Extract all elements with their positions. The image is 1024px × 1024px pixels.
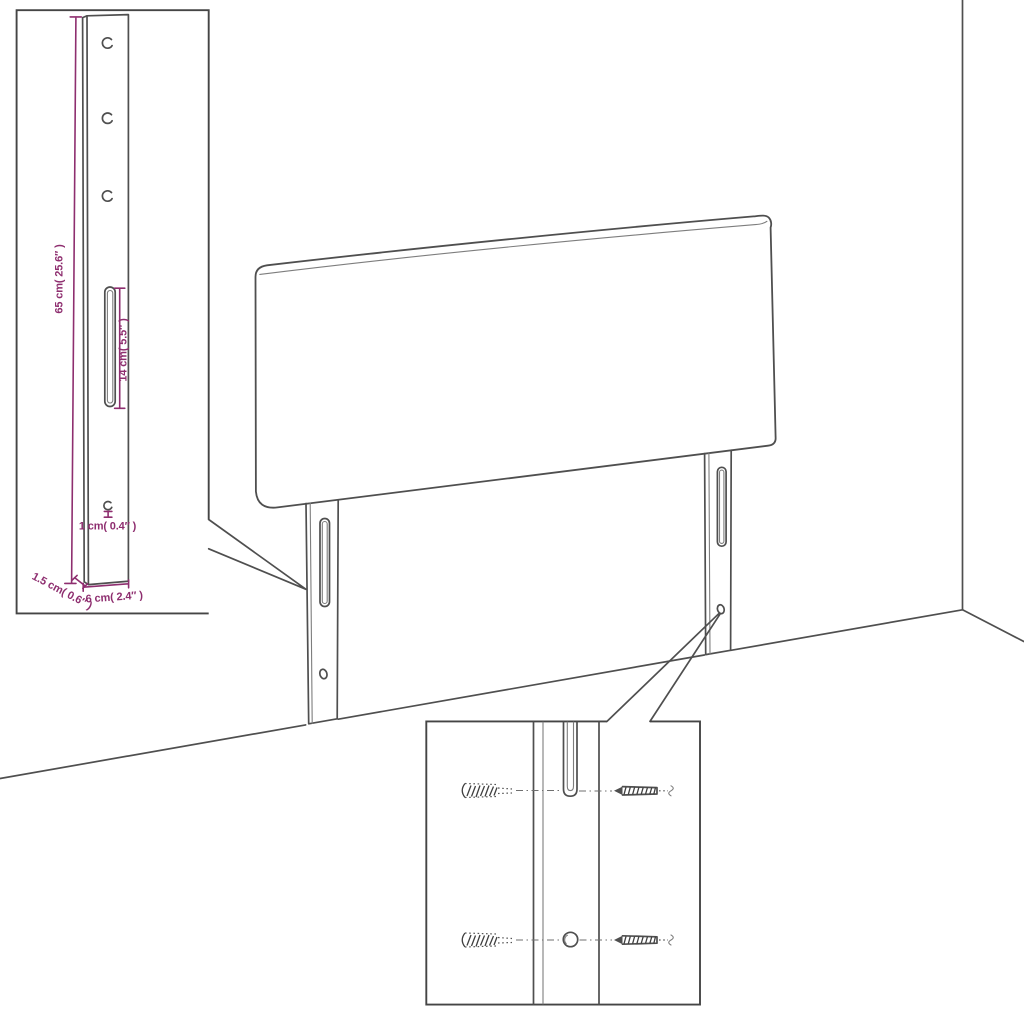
diagram-canvas: 65 cm( 25.6″ ) 14 cm( 5.5″ ) 1 cm( 0.4″ …	[0, 0, 1024, 1024]
dim-label-hole-diameter: 1 cm( 0.4″ )	[79, 521, 137, 533]
background	[0, 0, 1024, 1024]
dim-label-slot-length: 14 cm( 5.5″ )	[118, 318, 130, 382]
dim-label-leg-height: 65 cm( 25.6″ )	[54, 244, 66, 314]
product-dimension-diagram: 65 cm( 25.6″ ) 14 cm( 5.5″ ) 1 cm( 0.4″ …	[0, 0, 1024, 1024]
